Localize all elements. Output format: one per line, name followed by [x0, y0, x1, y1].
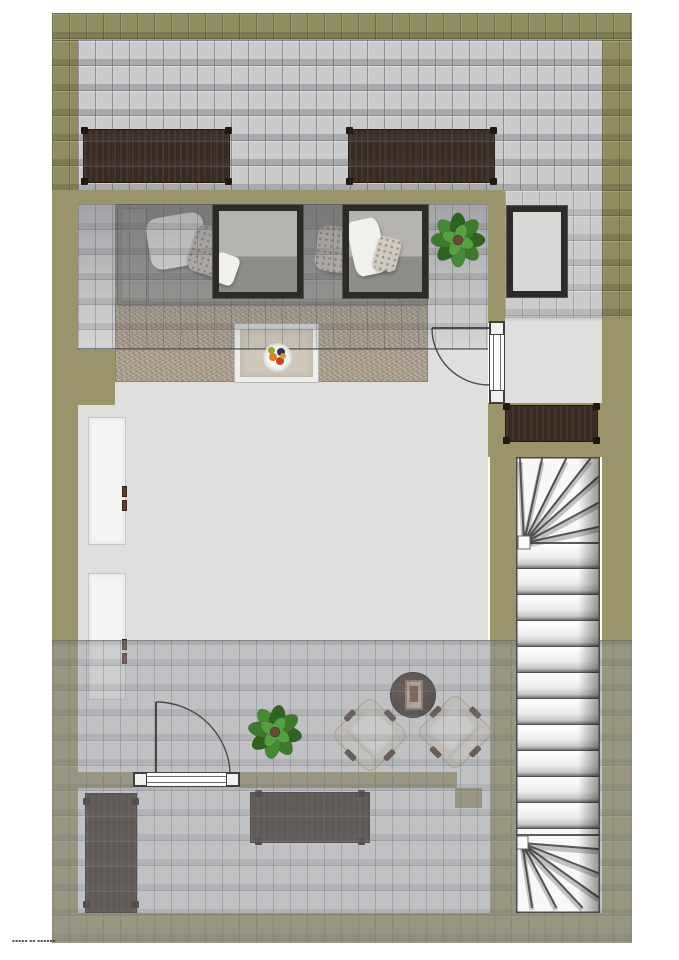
roof-window-right	[343, 205, 428, 298]
skylight-window	[507, 206, 567, 297]
hall-sideboard	[505, 405, 598, 442]
right-roof-eave-shadow	[505, 316, 602, 322]
door-hall-swing	[424, 318, 496, 400]
fruit-bowl	[263, 343, 292, 372]
wall-left-block	[52, 350, 115, 405]
plant-bottom	[246, 703, 304, 761]
roof-window-left	[213, 205, 303, 298]
top-roof-tile-overlay	[78, 40, 602, 190]
hall-landing-floor	[505, 318, 602, 404]
outer-wall-top	[52, 13, 632, 40]
outer-wall-right-mid	[602, 318, 632, 640]
winder-staircase	[516, 457, 600, 913]
watermark-text: ▪▪▪▪▪ ▪▪ ▪▪▪▪▪▪	[12, 939, 56, 943]
outer-wall-left-upper	[52, 40, 78, 190]
floor-plan-page: { "document": { "type": "rendered 3D top…	[0, 0, 679, 960]
floor-plan: ▪▪▪▪▪ ▪▪ ▪▪▪▪▪▪	[0, 0, 679, 960]
door-hall-frame	[489, 321, 505, 404]
plant-top	[429, 211, 487, 269]
door-bottom-threshold	[133, 772, 240, 787]
outer-wall-right-upper	[602, 40, 632, 318]
white-cabinet-upper	[88, 417, 126, 545]
wall-living-top	[52, 190, 505, 204]
wall-hall-vertical	[488, 190, 505, 323]
outer-wall-left-mid	[52, 190, 78, 640]
